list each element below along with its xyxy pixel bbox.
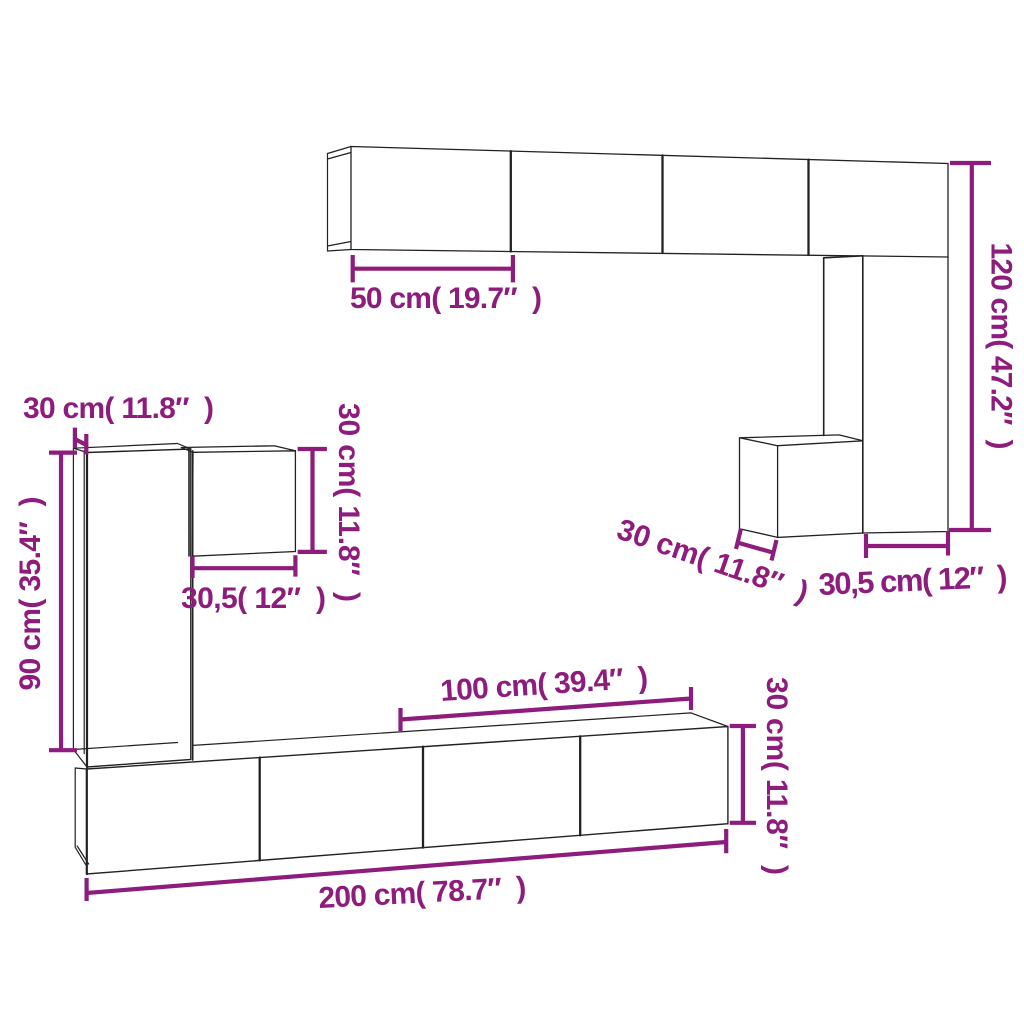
svg-text:50 cm( 19.7″ ): 50 cm( 19.7″ ) — [350, 282, 542, 315]
svg-text:30 cm( 11.8″ ): 30 cm( 11.8″ ) — [332, 403, 365, 602]
svg-text:120 cm( 47.2″ ): 120 cm( 47.2″ ) — [985, 243, 1018, 450]
svg-text:90 cm( 35.4″ ): 90 cm( 35.4″ ) — [14, 497, 47, 691]
svg-text:30 cm( 11.8″ ): 30 cm( 11.8″ ) — [23, 392, 214, 425]
svg-text:30,5( 12″ ): 30,5( 12″ ) — [181, 582, 326, 615]
svg-text:30 cm( 11.8″ ): 30 cm( 11.8″ ) — [760, 677, 793, 875]
